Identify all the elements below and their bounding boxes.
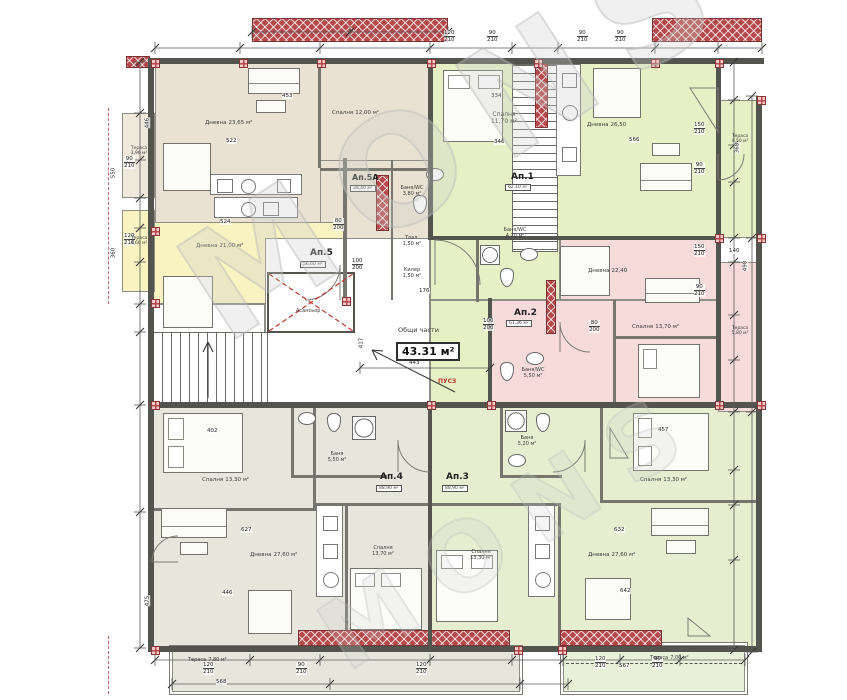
room-label: Баня/WC3,80 м²: [394, 186, 430, 198]
room-label: Дневна21,00 м²: [196, 243, 245, 249]
dim-value: 346: [494, 139, 505, 145]
room-label: Тоал.1,50 м²: [396, 236, 428, 248]
wall-int: [558, 503, 561, 650]
dim-pair: 90210: [296, 662, 307, 675]
junction-marker: [757, 234, 766, 243]
room-label: Дневна27,60 м²: [250, 552, 299, 558]
junction-marker: [558, 646, 567, 655]
shower-icon: [505, 410, 527, 432]
dim-pair: 80200: [333, 218, 344, 231]
dim-value: 334: [491, 93, 502, 99]
sink-icon: [298, 412, 316, 425]
dining-table: [585, 578, 631, 620]
dim-value: 524: [220, 219, 231, 225]
sofa: [645, 278, 700, 303]
terrace-label: Тераса4,50 м²: [722, 134, 758, 144]
apartment-label-ap5: Ап.5: [310, 248, 333, 258]
junction-marker: [239, 59, 248, 68]
apartment-label-ap3: Ап.3: [446, 472, 469, 482]
wall-int: [318, 62, 321, 168]
kitchen-counter: [210, 174, 302, 195]
bed: [633, 413, 709, 471]
terrace-bottom-left: [172, 648, 520, 692]
bed: [163, 413, 243, 473]
elevator-label: Асансьор: [296, 308, 322, 314]
junction-marker: [427, 59, 436, 68]
dim-value: 550: [110, 168, 116, 179]
wall-int: [500, 405, 503, 477]
hatched-wall: [252, 18, 448, 42]
dim-pair: 100200: [352, 258, 363, 271]
dining-table: [163, 143, 211, 191]
terrace-label: Тераса7,00 м²: [650, 655, 691, 661]
dashed-boundary-left-low: [108, 636, 109, 694]
dim-value: 176: [419, 288, 430, 294]
dim-pair: 120210: [444, 30, 455, 43]
room-label: Спалня13,30 м²: [458, 550, 504, 562]
junction-marker: [427, 401, 436, 410]
room-label: Спалня13,30 м²: [640, 477, 689, 483]
room-label: Баня/WC4,20 м²: [495, 228, 535, 240]
apartment-area-ap3: 88,90 м²: [442, 485, 468, 492]
dim-pair: 150210: [694, 122, 705, 135]
junction-marker: [514, 646, 523, 655]
room-label: Дневна23,65 м²: [205, 120, 254, 126]
common-area-value: 43.31 м²: [396, 342, 460, 361]
coffee-table: [256, 100, 286, 113]
wall-right: [756, 96, 762, 652]
dashed-boundary-left: [108, 108, 109, 304]
dim-pair: 90210: [615, 30, 626, 43]
sofa: [248, 68, 300, 94]
kitchen-column-ap3: [528, 505, 555, 597]
room-label: Баня5,20 м²: [512, 436, 542, 448]
apartment-area-ap2: 61,36 м²: [506, 320, 532, 327]
shower-icon: [480, 245, 500, 265]
dim-value: 566: [629, 137, 640, 143]
junction-marker: [151, 59, 160, 68]
dim-pair: 90210: [694, 284, 705, 297]
terrace-label: Тераса7,80 м²: [188, 657, 229, 663]
junction-marker: [534, 59, 543, 68]
dim-value: 402: [207, 428, 218, 434]
dim-value: 453: [282, 93, 293, 99]
red-note: ПУСЗ: [438, 378, 458, 385]
apartment-label-ap1: Ап.1: [511, 172, 534, 182]
wall-bottom: [150, 646, 762, 652]
junction-marker: [715, 401, 724, 410]
coffee-table: [180, 542, 208, 555]
sink-icon: [508, 454, 526, 467]
bed: [443, 70, 503, 142]
dining-table: [163, 276, 213, 328]
coffee-table: [666, 540, 696, 554]
apartment-area-ap5: 56,60 м²: [300, 261, 326, 268]
dim-value: 446: [144, 118, 150, 129]
wall-v1: [428, 58, 433, 240]
junction-marker: [151, 227, 160, 236]
hatched-wall: [376, 175, 389, 231]
sofa: [651, 508, 709, 536]
bed: [350, 568, 422, 630]
dim-pair: 100200: [483, 318, 494, 331]
room-label: Дневна26,50: [587, 122, 628, 128]
wall-int: [600, 405, 603, 503]
room-label: Спалня12,00 м²: [332, 110, 381, 116]
wall-int: [616, 336, 718, 339]
staircase-main: [152, 332, 268, 404]
kitchen-column-ap4: [316, 505, 343, 597]
sink-icon: [520, 248, 538, 261]
dim-pair: 120210: [203, 662, 214, 675]
wall-int: [345, 505, 348, 650]
wall-v3: [488, 298, 492, 408]
room-label: Спалня13,70 м²: [632, 324, 681, 330]
apartment-area-ap4: 88,90 м²: [376, 485, 402, 492]
wall-int: [476, 238, 479, 302]
dim-value: 642: [620, 588, 631, 594]
dining-table: [593, 68, 641, 118]
apartment-area-ap5a: 38,40 м²: [350, 185, 376, 192]
hatched-wall: [560, 630, 662, 646]
apartment-label-ap5a: Ап.5А: [352, 173, 379, 182]
dim-pair: 150210: [694, 244, 705, 257]
junction-marker: [715, 59, 724, 68]
wall-int: [600, 500, 760, 503]
dim-value: 360: [110, 248, 116, 259]
dim-value: 567: [619, 663, 630, 669]
hatched-wall: [535, 62, 548, 128]
wall-int: [343, 158, 347, 304]
dim-pair: 80200: [589, 320, 600, 333]
hatched-wall: [546, 280, 556, 334]
room-label: Спалня13,30 м²: [202, 477, 251, 483]
dim-value: 627: [241, 527, 252, 533]
junction-marker: [757, 96, 766, 105]
floor-plan-canvas: Ап.1 62,10 м² Ап.2 61,36 м² Ап.3 88,90 м…: [0, 0, 847, 700]
dim-value: 446: [222, 590, 233, 596]
wall-int: [291, 405, 294, 477]
wall-int: [613, 300, 616, 405]
wall-int: [391, 160, 393, 300]
dim-value: 498: [742, 261, 748, 272]
terrace-label: Тераса4,60 м²: [124, 236, 154, 246]
room-label: Дневна27,60 м²: [588, 552, 637, 558]
dim-value: 568: [216, 679, 227, 685]
hatched-wall: [298, 630, 510, 646]
wall-int: [500, 475, 562, 478]
wall-int: [291, 475, 387, 478]
wall-int: [320, 168, 430, 171]
dining-table: [248, 590, 292, 634]
apartment-label-ap2: Ап.2: [514, 308, 537, 318]
dim-value: 457: [658, 427, 669, 433]
sofa: [161, 508, 227, 538]
junction-marker: [151, 646, 160, 655]
junction-marker: [487, 401, 496, 410]
room-label: Баня/WC5,50 м²: [514, 368, 552, 380]
dim-pair: 90210: [487, 30, 498, 43]
room-label: Килер1,50 м²: [396, 268, 428, 280]
room-label: Дневна22,40: [588, 268, 629, 274]
room-label: Спалня11,70 м²: [482, 112, 526, 126]
room-label: Спалня13,70 м²: [358, 546, 408, 558]
dim-pair: 120210: [595, 656, 606, 669]
sink-icon: [526, 352, 544, 365]
kitchen-column-ap1: [556, 64, 581, 176]
wall-mid: [150, 402, 762, 408]
dim-value: 522: [226, 138, 237, 144]
dim-pair: 90210: [577, 30, 588, 43]
junction-marker: [342, 297, 351, 306]
wall-v2: [716, 58, 721, 408]
junction-marker: [151, 299, 160, 308]
dim-pair: 120210: [416, 662, 427, 675]
junction-marker: [151, 401, 160, 410]
junction-marker: [757, 401, 766, 410]
apartment-area-ap1: 62,10 м²: [505, 184, 531, 191]
coffee-table: [652, 143, 680, 156]
dim-value: 632: [614, 527, 625, 533]
apartment-label-ap4: Ап.4: [380, 472, 403, 482]
sofa: [640, 163, 692, 191]
hatched-wall: [652, 18, 762, 42]
junction-marker: [715, 234, 724, 243]
terrace-label: Тераса3,96 м²: [124, 146, 154, 156]
common-area-label: Общи части: [398, 326, 441, 334]
kitchen-counter: [214, 197, 298, 218]
hatched-wall: [126, 56, 150, 68]
wall-h1: [428, 236, 721, 240]
dim-value: 417: [358, 338, 364, 349]
dim-value: 140: [729, 248, 740, 254]
junction-marker: [651, 59, 660, 68]
wall-v4: [428, 405, 432, 650]
terrace-label: Тераса5,80 м²: [722, 326, 758, 336]
dim-value: 475: [144, 596, 150, 607]
room-label: Баня5,50 м²: [322, 452, 352, 464]
junction-marker: [317, 59, 326, 68]
dim-pair: 90210: [124, 156, 135, 169]
dim-pair: 90210: [694, 162, 705, 175]
shower-icon: [352, 416, 376, 440]
bed: [638, 344, 700, 398]
wall-left-lower: [148, 402, 154, 652]
